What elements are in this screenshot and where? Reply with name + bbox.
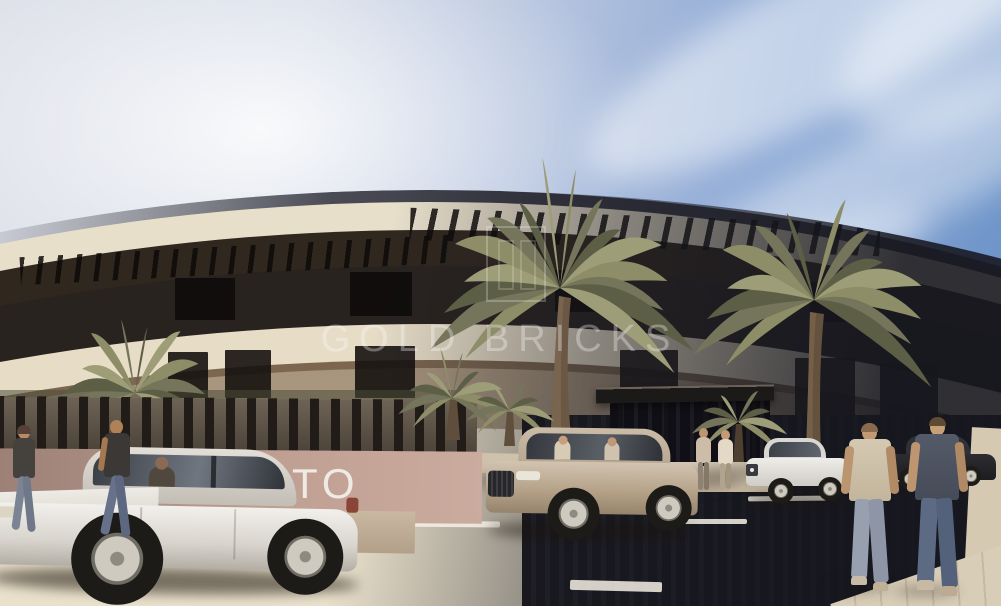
white-sedan [0,444,365,598]
champagne-suv [485,427,699,542]
person-shoe [917,580,934,590]
white-mercedes-sedan [746,438,850,506]
person-leg [726,463,731,489]
woman-walking [8,426,42,558]
mercedes-star-icon [750,468,754,472]
suv-occupant-head [559,436,568,445]
window-pillar [211,456,217,488]
suv-occupant-head [608,437,617,446]
person-leg [114,475,130,538]
person-cream-outfit [716,430,736,490]
person-hair [929,417,946,426]
person-shoe [873,582,888,591]
man-walking [98,420,138,562]
person-leg [917,498,938,585]
person-leg [698,462,703,490]
car-headlight [516,471,540,480]
person-torso [718,439,733,464]
person-torso [849,439,891,501]
person-shoe [941,586,957,596]
person-beige-jacket [693,428,715,492]
person-shoe [851,576,867,585]
person-leg [936,498,958,589]
person-torso [696,437,711,463]
car-wheel [645,485,692,532]
person-torso [13,438,35,478]
person-hair [861,423,878,432]
man-beige-shirt [843,424,897,592]
car-wheel [768,478,794,504]
person-leg [720,463,725,489]
person-head [110,420,123,434]
person-leg [868,499,889,584]
car-window [526,433,662,461]
man-gray-shirt [910,418,966,596]
person-leg [22,476,36,533]
person-leg [704,462,709,490]
car-wheel [818,477,842,501]
person-hair [17,425,31,434]
render-canvas: TO [0,0,1001,606]
car-grille [488,471,514,497]
car-window [769,442,821,457]
car-taillight [346,498,358,513]
person-torso [915,434,959,500]
palm-trunk [446,400,460,440]
